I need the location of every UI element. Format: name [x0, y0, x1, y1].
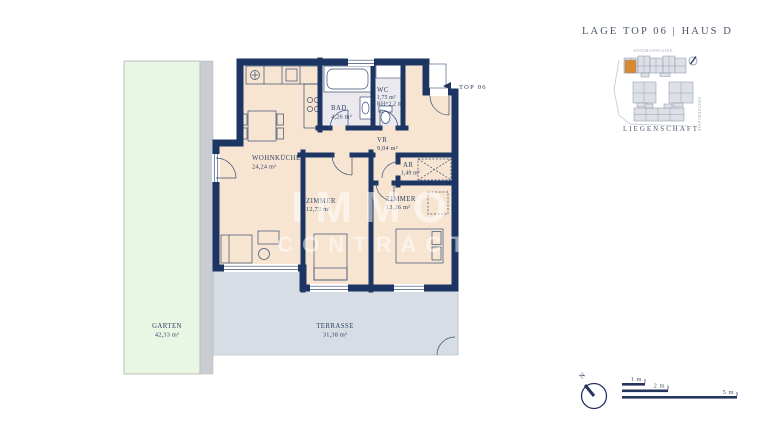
highlighted-unit	[625, 60, 636, 73]
bathtub	[324, 66, 371, 92]
svg-text:31,38 m²: 31,38 m²	[323, 332, 347, 339]
site-plan-caption: LIEGENSCHAFT	[623, 125, 699, 133]
svg-text:IMMO: IMMO	[291, 183, 459, 232]
svg-text:4,26 m²: 4,26 m²	[331, 114, 352, 121]
floorplan-page: WOHNKÜCHE 24,24 m² BAD 4,26 m² WC 1,75 m…	[0, 0, 770, 433]
unit-marker-label: TOP 06	[459, 84, 487, 91]
floorplan-svg: WOHNKÜCHE 24,24 m² BAD 4,26 m² WC 1,75 m…	[0, 0, 770, 433]
north-needle-icon	[585, 385, 594, 396]
svg-text:24,24 m²: 24,24 m²	[252, 164, 276, 171]
svg-text:RH=2,2 m: RH=2,2 m	[377, 102, 403, 108]
room-label-garten: GARTEN	[152, 323, 182, 330]
shaft-niche	[376, 65, 402, 78]
site-plan: ENDEMANNGASSE GASTGEBGASSE	[614, 49, 701, 133]
building-row-north	[624, 56, 686, 77]
scale-bar-1m	[622, 383, 645, 386]
scale-bar-5m	[622, 396, 737, 399]
building-mid-right	[669, 82, 693, 107]
page-title: LAGE TOP 06 | HAUS D	[582, 26, 733, 37]
svg-text:CONTRACT: CONTRACT	[277, 232, 472, 257]
svg-text:5 m: 5 m	[723, 389, 734, 396]
compass-icon: N	[578, 371, 607, 409]
room-label-terrasse: TERRASSE	[316, 323, 354, 330]
svg-text:9,04 m²: 9,04 m²	[377, 145, 398, 152]
room-label-wohnkueche: WOHNKÜCHE	[252, 155, 301, 162]
room-label-ar: AR	[403, 162, 413, 169]
building-mid-left	[633, 82, 656, 107]
svg-text:2 m: 2 m	[654, 383, 665, 390]
svg-text:1 m: 1 m	[631, 376, 642, 383]
scale-bar-2m	[622, 390, 668, 393]
svg-text:42,33 m²: 42,33 m²	[155, 332, 179, 339]
street-label-top: ENDEMANNGASSE	[633, 49, 672, 53]
svg-text:1,75 m²: 1,75 m²	[377, 95, 396, 101]
scale-bar: 1 m 2 m 5 m	[622, 376, 737, 399]
svg-text:1,49 m²: 1,49 m²	[401, 171, 420, 177]
room-label-vr: VR	[377, 137, 387, 144]
site-compass-icon	[689, 57, 697, 66]
room-label-bad: BAD	[331, 105, 347, 112]
watermark: IMMO CONTRACT	[277, 183, 472, 257]
room-label-wc: WC	[377, 87, 389, 94]
north-label: N	[578, 371, 588, 381]
